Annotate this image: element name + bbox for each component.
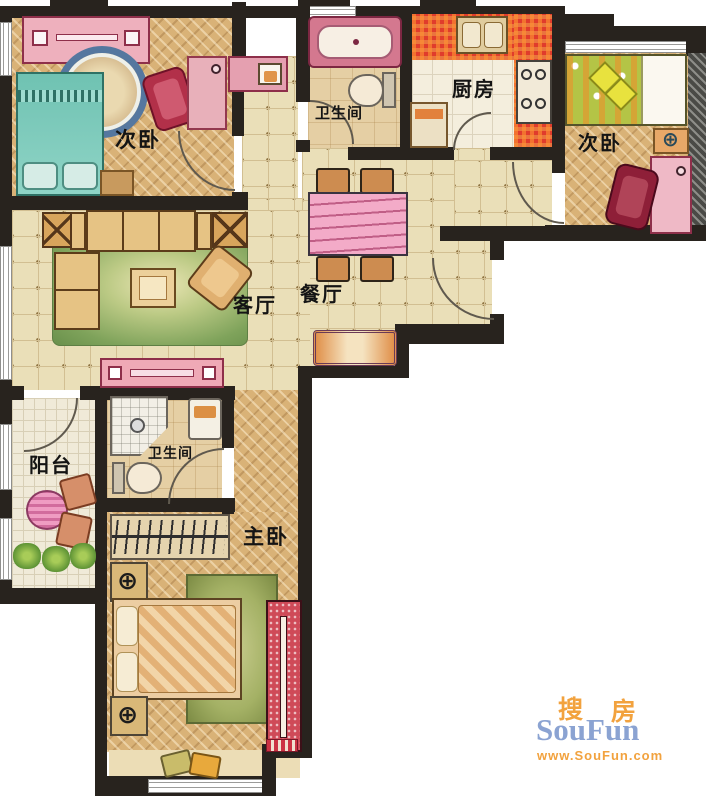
lamp-icon: ⊕ <box>117 569 138 594</box>
desk-right <box>650 156 692 234</box>
toilet-bowl <box>348 74 384 107</box>
bed-right-sheet <box>641 56 685 124</box>
shower-head <box>130 418 145 433</box>
master-bed <box>112 598 242 700</box>
sink-basin <box>484 22 503 48</box>
sofa-armrest <box>70 212 86 250</box>
armchair-cushion <box>152 77 188 121</box>
logo-url-text: www.SouFun.com <box>537 748 663 763</box>
wardrobe <box>110 514 230 560</box>
tv-cabinet-square <box>202 366 216 380</box>
bed-right <box>565 54 687 126</box>
dining-chair <box>360 256 394 282</box>
living-label: 客厅 <box>233 296 277 316</box>
desk-knob <box>676 166 686 176</box>
wall <box>95 390 107 795</box>
wall <box>560 14 614 34</box>
master-bed-pillow <box>116 652 138 692</box>
wall <box>222 386 234 448</box>
dining-chair <box>360 168 394 194</box>
burner <box>535 98 546 109</box>
dresser-mirror-right <box>124 30 140 46</box>
burner <box>535 69 546 80</box>
wall <box>300 366 400 378</box>
armchair-cushion <box>199 257 241 299</box>
dining-table <box>308 192 408 256</box>
bed-teal <box>16 72 104 196</box>
chair-cushion <box>615 174 650 219</box>
side-table-left <box>42 212 72 248</box>
wall <box>232 2 246 58</box>
dining-label: 餐厅 <box>300 285 344 305</box>
towel <box>415 109 443 119</box>
sideboard <box>313 330 397 366</box>
hall-closet-shelf <box>258 63 282 85</box>
lamp-icon: ⊕ <box>662 130 679 150</box>
bathtub <box>308 16 402 68</box>
bathtub-drain <box>353 39 359 45</box>
wall <box>686 26 706 56</box>
master-nightstand: ⊕ <box>110 562 148 602</box>
wall <box>0 588 107 604</box>
nightstand <box>100 170 134 196</box>
wall <box>397 324 504 344</box>
master-cabinet-red <box>266 600 302 752</box>
window <box>0 424 12 490</box>
master-nightstand: ⊕ <box>110 696 148 736</box>
logo-latin-text: SouFun <box>536 712 639 748</box>
bed-teal-pillow <box>22 162 58 190</box>
sink-basin <box>462 22 481 48</box>
balcony-label: 阳台 <box>29 456 73 476</box>
burner <box>521 69 532 80</box>
nightstand-right: ⊕ <box>653 128 689 154</box>
bathroom-top-label: 卫生间 <box>315 106 363 121</box>
window <box>148 779 263 793</box>
bathroom-master-label: 卫生间 <box>148 446 193 460</box>
bed-teal-pillow <box>62 162 98 190</box>
window <box>0 518 12 580</box>
tv-bar <box>130 369 194 377</box>
wall <box>0 196 248 210</box>
closet-item <box>264 71 277 82</box>
wall <box>490 238 504 260</box>
vanity-knob <box>211 64 221 74</box>
sofa-armrest <box>196 212 212 250</box>
wall <box>232 92 244 136</box>
toilet-master-tank <box>112 462 125 494</box>
vanity-desk <box>187 56 227 130</box>
corridor-floor <box>234 390 298 512</box>
sink-towel <box>194 406 216 418</box>
plant <box>13 543 41 569</box>
master-label: 主卧 <box>243 527 289 548</box>
stove <box>516 60 552 124</box>
wall <box>232 192 248 210</box>
coffee-table-top <box>139 276 167 300</box>
bathroom-master-sink <box>188 398 222 440</box>
window <box>0 22 12 76</box>
dresser-bar <box>56 34 118 41</box>
bay-mat <box>266 739 298 752</box>
tv-cabinet <box>100 358 224 388</box>
bay-pillow <box>188 752 222 780</box>
plant <box>70 543 96 569</box>
hall-closet <box>228 56 288 92</box>
kitchen-label: 厨房 <box>452 80 496 100</box>
wardrobe-rod <box>112 535 228 538</box>
kitchen-sink <box>456 16 508 54</box>
burner <box>521 98 532 109</box>
cabinet-slot <box>280 616 287 738</box>
sofa-back <box>86 210 196 252</box>
plant <box>42 546 70 572</box>
tv-cabinet-square <box>108 366 122 380</box>
master-bed-duvet <box>138 605 236 693</box>
master-bed-pillow <box>116 606 138 646</box>
bed-teal-band <box>18 90 102 102</box>
bedroom-left-label: 次卧 <box>115 130 161 151</box>
lamp-icon: ⊕ <box>117 703 138 728</box>
washing-machine <box>410 102 448 148</box>
floorplan-canvas: 次卧 卫生间 厨房 ⊕ 次卧 <box>0 0 709 800</box>
toilet-master-bowl <box>126 462 162 494</box>
dining-chair <box>316 256 350 282</box>
window <box>0 246 12 380</box>
side-table-right <box>212 212 248 248</box>
bedroom-right-label: 次卧 <box>578 134 622 154</box>
coffee-table <box>130 268 176 308</box>
dresser-mirror-left <box>32 30 48 46</box>
dining-chair <box>316 168 350 194</box>
sofa-left <box>54 252 100 330</box>
soufun-watermark: 搜 房 SouFun www.SouFun.com <box>528 690 698 770</box>
wall <box>296 140 310 152</box>
wall <box>348 147 454 160</box>
window <box>565 41 688 53</box>
toilet-tank <box>382 72 396 108</box>
wall <box>490 147 554 160</box>
